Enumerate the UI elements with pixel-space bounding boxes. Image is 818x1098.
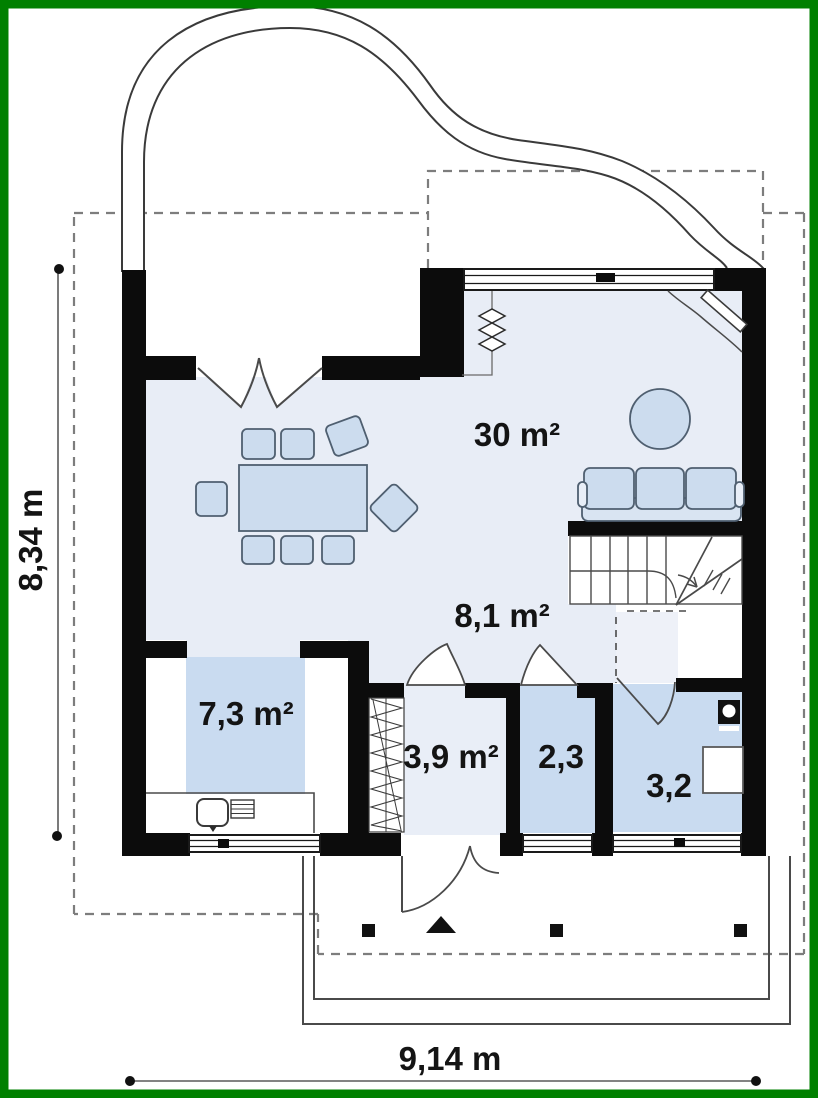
svg-text:2,3: 2,3 xyxy=(538,738,584,775)
svg-text:8,34 m: 8,34 m xyxy=(12,489,49,592)
svg-text:8,1 m²: 8,1 m² xyxy=(454,597,549,634)
svg-text:7,3 m²: 7,3 m² xyxy=(198,695,293,732)
svg-text:3,2: 3,2 xyxy=(646,767,692,804)
svg-text:9,14 m: 9,14 m xyxy=(399,1040,502,1077)
svg-text:3,9 m²: 3,9 m² xyxy=(403,738,498,775)
svg-text:30 m²: 30 m² xyxy=(474,416,560,453)
